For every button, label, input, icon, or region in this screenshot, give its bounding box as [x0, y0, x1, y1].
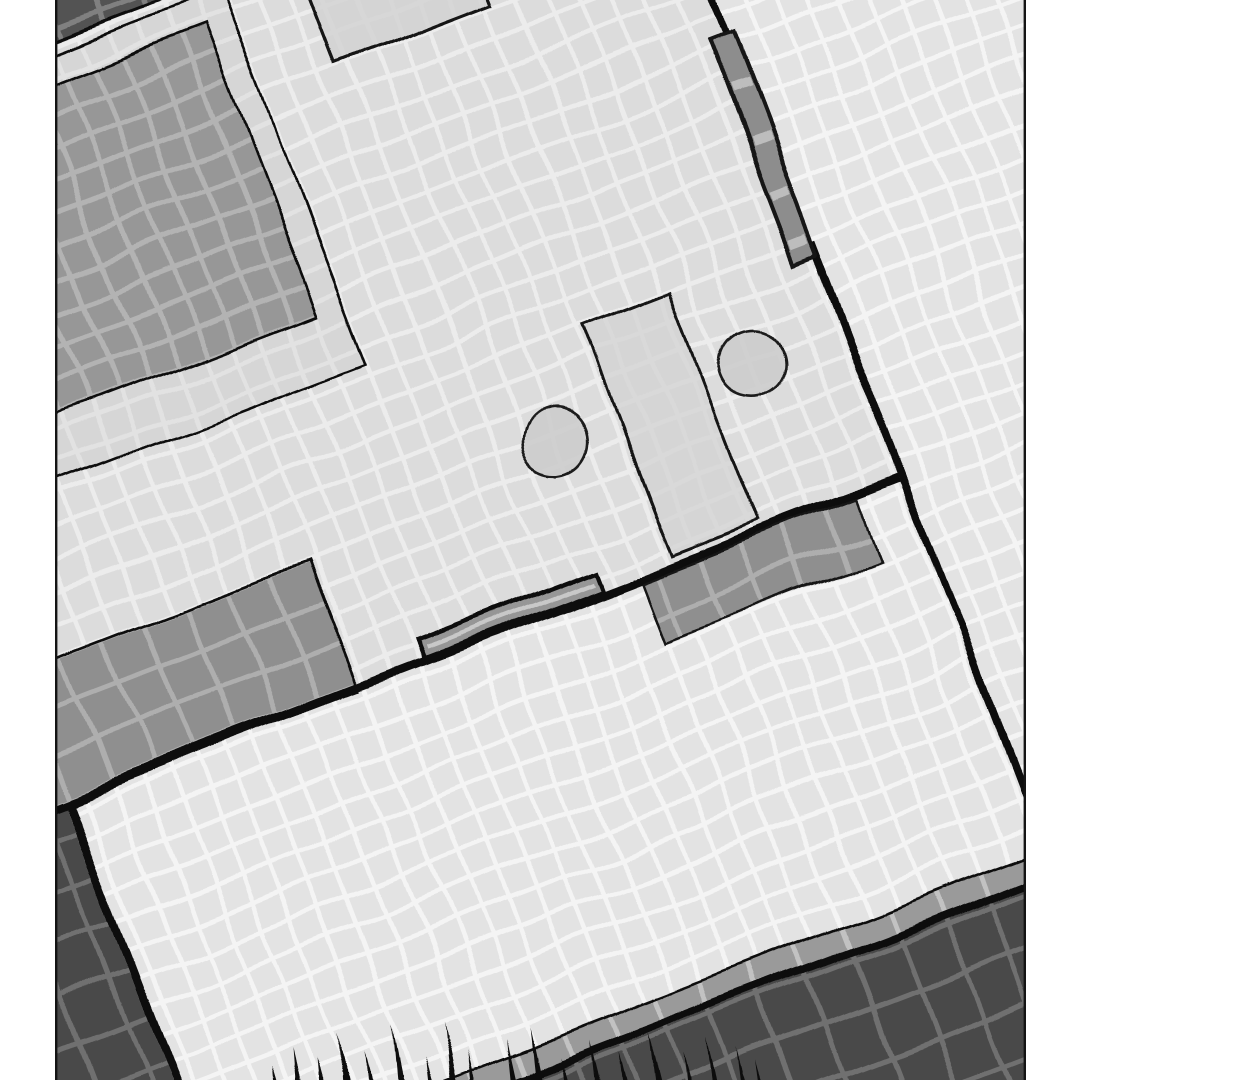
comic-panel: Black-and-white overhead manga-style pan… [0, 0, 1259, 1080]
floorplan-illustration [0, 0, 1259, 1080]
